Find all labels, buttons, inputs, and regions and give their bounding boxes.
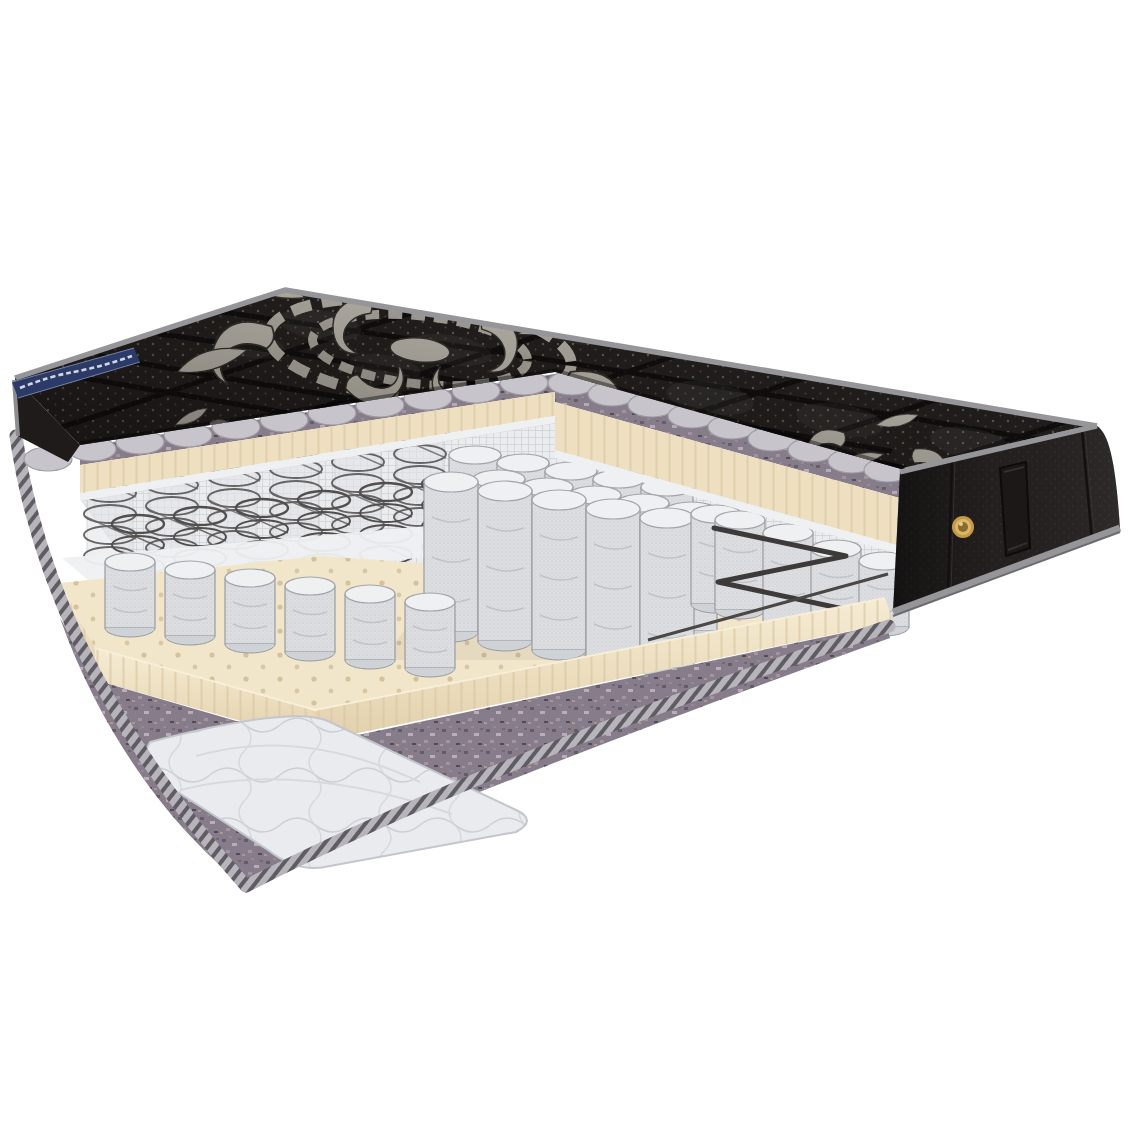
air-vent: [952, 516, 974, 538]
pocket-spring: [586, 499, 640, 669]
pocket-spring: [405, 593, 455, 677]
pocket-spring: [715, 511, 765, 619]
pocket-spring: [532, 490, 586, 660]
pocket-spring: [105, 553, 155, 637]
pocket-spring: [165, 561, 215, 645]
product-photo-canvas: [0, 0, 1128, 1128]
pocket-spring: [478, 481, 532, 651]
pocket-spring: [345, 585, 395, 669]
pocket-spring: [225, 569, 275, 653]
side-handle: [1000, 462, 1030, 556]
pocket-spring: [285, 577, 335, 661]
mattress-cutaway-illustration: [0, 0, 1128, 1128]
